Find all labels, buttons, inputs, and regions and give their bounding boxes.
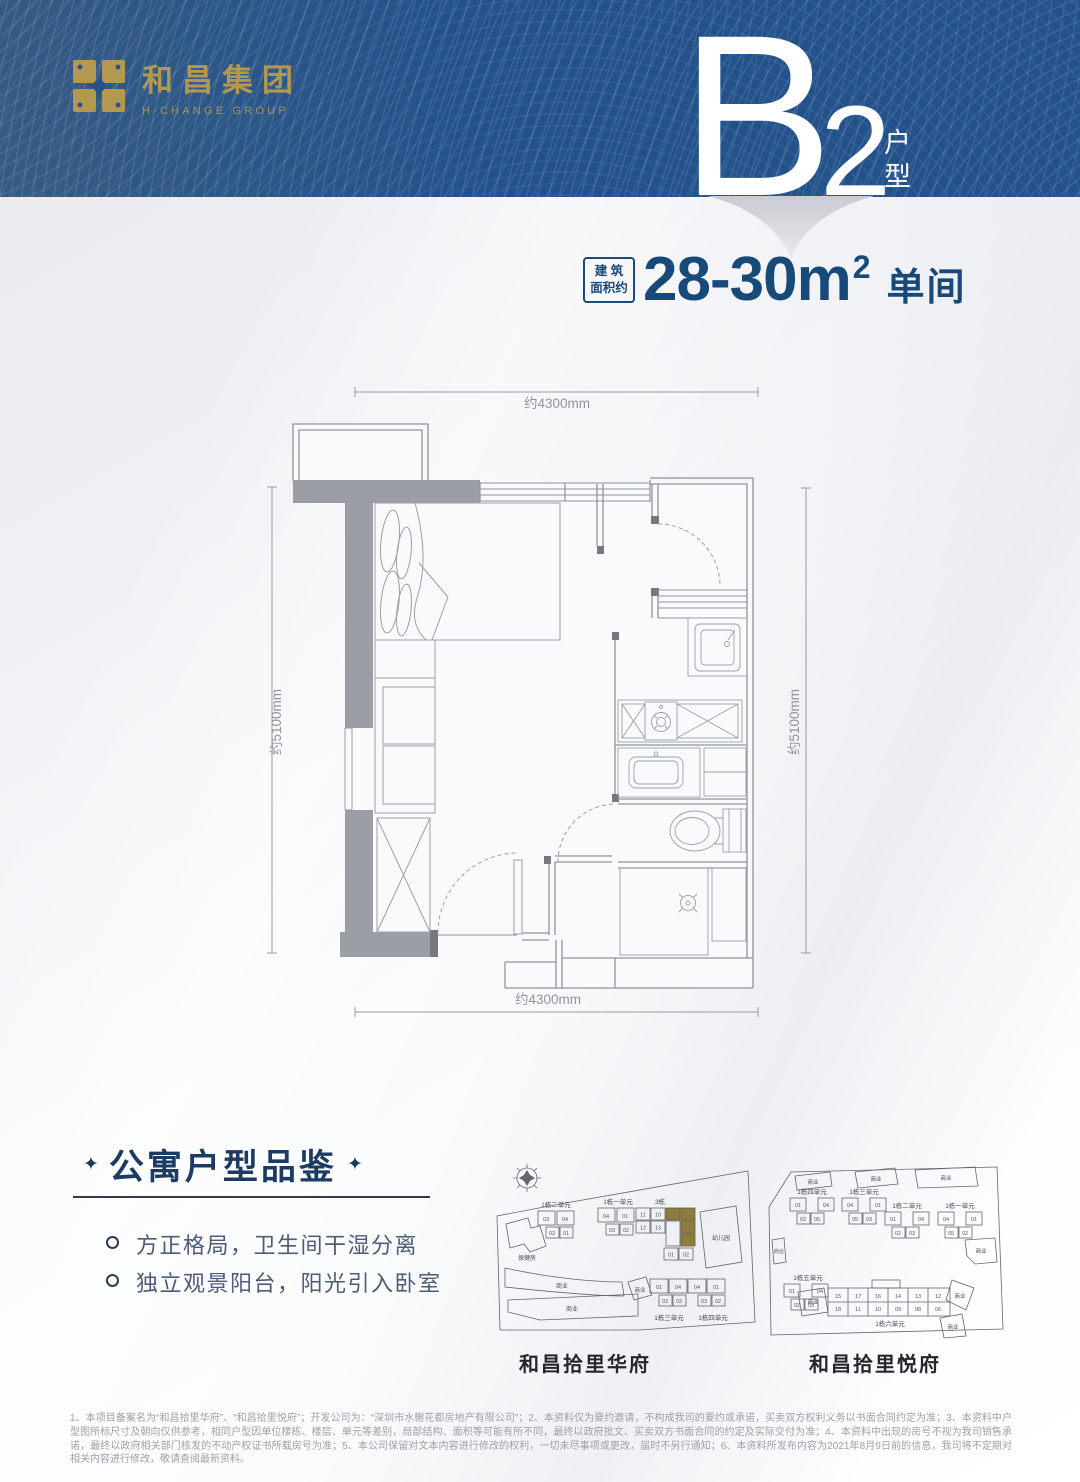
unit-number: 01	[875, 1203, 881, 1209]
unit-number: 04	[675, 1285, 681, 1291]
features-divider	[73, 1196, 430, 1198]
building-label: 商业	[807, 1178, 819, 1186]
commercial-kiosk: 商业	[628, 1277, 652, 1300]
area-value: 28-30m	[643, 244, 851, 315]
unit-number: 10	[655, 1213, 661, 1219]
unit-number: 02	[962, 1231, 968, 1237]
unit-number: 04	[817, 1289, 823, 1295]
building-label: 1栋三单元	[654, 1313, 684, 1322]
unit-number: 10	[875, 1307, 881, 1313]
unit-number: 04	[694, 1285, 700, 1291]
siteplans-svg: 03 04 02 01 1栋二单元 04 01 03 02 1栋一单元 保健房 …	[480, 1150, 1020, 1350]
unit-code-letter: B	[680, 0, 833, 197]
star-icon: ✦	[83, 1153, 99, 1176]
building-label: 商业	[807, 1298, 819, 1306]
unit-number: 05	[814, 1217, 820, 1223]
siteplan-left-caption: 和昌拾里华府	[490, 1348, 680, 1377]
building-label: 1栋二单元	[892, 1201, 922, 1210]
unit-number: 17	[855, 1294, 861, 1300]
floorplan-svg: 约4300mm 约4300mm 约5100mm 约5100mm	[250, 378, 820, 1040]
unit-number: 14	[895, 1294, 901, 1300]
clinic-building: 保健房	[506, 1218, 546, 1262]
building-label: 1栋六单元	[875, 1319, 905, 1328]
unit-number: 01	[713, 1285, 719, 1291]
feature-text: 方正格局，卫生间干湿分离	[136, 1228, 418, 1260]
unit-number: 03	[543, 1217, 549, 1223]
unit-number: 02	[623, 1228, 629, 1234]
unit-number: 04	[823, 1203, 829, 1209]
unit-number: 03	[866, 1217, 872, 1223]
building-label: 商业	[947, 1323, 959, 1331]
building-label: 1栋五单元	[793, 1273, 823, 1282]
unit-number: 12	[640, 1226, 646, 1232]
commercial-strip: 商业	[505, 1268, 624, 1296]
building-label: 商业	[975, 1247, 987, 1255]
unit-number: 01	[668, 1253, 674, 1259]
building-label: 商业	[774, 1248, 784, 1255]
unit-number: 01	[890, 1217, 896, 1223]
unit-number: 01	[795, 1203, 801, 1209]
bullet-icon	[106, 1274, 119, 1287]
stove	[645, 702, 677, 740]
building-label: 1栋一单元	[603, 1197, 633, 1206]
unit-number: 13	[915, 1294, 921, 1300]
dim-left-label: 约5100mm	[269, 689, 284, 755]
building-cluster: 1栋一单元 04 01 05 02	[938, 1201, 982, 1238]
room-type: 单间	[887, 256, 967, 311]
unit-code-number: 2	[820, 80, 891, 197]
unit-number: 03	[609, 1228, 615, 1234]
commercial-kiosk: 商业	[915, 1167, 978, 1188]
unit-number: 09	[895, 1307, 901, 1313]
building-label: 商业	[566, 1305, 578, 1313]
star-icon: ✦	[347, 1153, 363, 1176]
unit-number: 08	[915, 1307, 921, 1313]
unit-number: 01	[622, 1214, 628, 1220]
siteplan-right: 商业 商业 商业 1栋四单元 01 04 02 05 1栋三单元 04 01 0…	[769, 1167, 1003, 1338]
area-badge-line1: 建 筑	[595, 263, 623, 280]
unit-number: 11	[855, 1307, 861, 1313]
unit-number: 02	[549, 1231, 555, 1237]
building-cluster: 1栋四单元 01 04 02 05	[790, 1187, 834, 1224]
unit-suffix-bottom: 型	[884, 162, 911, 192]
feature-item: 方正格局，卫生间干湿分离	[106, 1228, 418, 1260]
unit-number: 02	[800, 1217, 806, 1223]
unit-number: 15	[835, 1294, 841, 1300]
building-label: 1栋四单元	[797, 1187, 827, 1196]
area-superscript: 2	[853, 249, 871, 286]
area-value-wrap: 28-30m 2 单间	[643, 244, 967, 315]
commercial-kiosk: 商业	[772, 1238, 786, 1264]
kindergarten-building: 幼儿园	[700, 1206, 742, 1268]
building-label: 商业	[940, 1174, 952, 1182]
building-label: 1栋三单元	[849, 1187, 879, 1196]
unit-number: 02	[895, 1231, 901, 1237]
commercial-kiosk: 商业	[795, 1172, 832, 1190]
building-label: 商业	[556, 1282, 568, 1290]
unit-number: 03	[909, 1231, 915, 1237]
disclaimer-text: 1、本项目备案名为“和昌拾里华府”、“和昌拾里悦府”；开发公司为：“深圳市水榭花…	[70, 1412, 1012, 1467]
unit-number: 01	[971, 1217, 977, 1223]
dim-right-label: 约5100mm	[787, 689, 802, 755]
area-badge: 建 筑 面积约	[583, 257, 635, 303]
dim-bottom-label: 约4300mm	[515, 992, 581, 1007]
building-label: 商业	[634, 1286, 646, 1294]
siteplan-right-caption: 和昌拾里悦府	[780, 1348, 970, 1377]
unit-number: 06	[935, 1307, 941, 1313]
building-label: 1栋四单元	[698, 1313, 728, 1322]
building-3-cluster: 3栋 11 10 12 13 01 02	[636, 1197, 695, 1260]
unit-number: 05	[948, 1231, 954, 1237]
building-cluster: 1栋五单元 01 04 02 03	[784, 1273, 828, 1310]
unit-code-block: B 2 户 型	[0, 0, 1080, 197]
unit-number: 16	[875, 1294, 881, 1300]
compass-icon	[513, 1164, 541, 1192]
commercial-kiosk: 商业	[855, 1168, 898, 1188]
building-label: 商业	[870, 1175, 882, 1183]
building-label: 3栋	[655, 1197, 666, 1206]
bullet-icon	[106, 1236, 119, 1249]
unit-number: 02	[683, 1253, 689, 1259]
features-title-row: ✦ 公寓户型品鉴 ✦	[73, 1139, 373, 1190]
header-band: 和昌集团 H-CHANGE GROUP B 2 户 型	[0, 0, 1080, 197]
unit-number: 02	[794, 1303, 800, 1309]
unit-number: 03	[662, 1299, 668, 1305]
commercial-kiosk: 商业	[940, 1314, 966, 1338]
unit-number: 02	[676, 1299, 682, 1305]
building-label: 1栋二单元	[541, 1200, 571, 1209]
area-line: 建 筑 面积约 28-30m 2 单间	[583, 244, 967, 315]
unit-number: 03	[701, 1299, 707, 1305]
unit-number: 01	[563, 1231, 569, 1237]
feature-item: 独立观景阳台，阳光引入卧室	[106, 1266, 442, 1298]
unit-number: 13	[655, 1226, 661, 1232]
commercial-kiosk: 商业	[965, 1238, 997, 1264]
commercial-strip: 商业	[508, 1294, 638, 1320]
unit-number: 04	[943, 1217, 949, 1223]
area-badge-line2: 面积约	[590, 280, 628, 297]
siteplan-left: 03 04 02 01 1栋二单元 04 01 03 02 1栋一单元 保健房 …	[497, 1171, 755, 1330]
unit-number: 02	[715, 1299, 721, 1305]
unit-number: 12	[935, 1294, 941, 1300]
building-label: 商业	[954, 1292, 966, 1300]
unit-number: 04	[603, 1214, 609, 1220]
dim-top-label: 约4300mm	[524, 396, 590, 411]
commercial-kiosk: 商业	[798, 1288, 828, 1316]
building-cluster: 1栋二单元 01 04 02 03	[885, 1201, 929, 1238]
unit-number: 04	[562, 1217, 568, 1223]
highlighted-units	[666, 1208, 695, 1246]
unit-number: 05	[852, 1217, 858, 1223]
unit-number: 01	[656, 1285, 662, 1291]
features-title: 公寓户型品鉴	[109, 1139, 337, 1190]
building-cluster: 01 04 04 01 03 02 03 02 1栋三单元 1栋四单元	[650, 1279, 728, 1322]
building-cluster: 1栋三单元 04 01 05 03	[842, 1187, 886, 1224]
unit-number: 04	[847, 1203, 853, 1209]
unit-number: 01	[789, 1289, 795, 1295]
building-cluster: 04 01 03 02 1栋一单元	[598, 1197, 634, 1235]
unit-suffix-top: 户	[884, 128, 911, 158]
building-bar: 15 17 16 14 13 12 18 11 10 09 08 06 1栋六单…	[828, 1280, 950, 1328]
unit-number: 04	[918, 1217, 924, 1223]
building-cluster: 03 04 02 01 1栋二单元	[538, 1200, 574, 1238]
building-label: 幼儿园	[712, 1234, 730, 1242]
feature-text: 独立观景阳台，阳光引入卧室	[136, 1266, 442, 1298]
unit-number: 11	[640, 1213, 646, 1219]
building-label: 保健房	[518, 1254, 536, 1262]
unit-number: 18	[835, 1307, 841, 1313]
building-label: 1栋一单元	[945, 1201, 975, 1210]
